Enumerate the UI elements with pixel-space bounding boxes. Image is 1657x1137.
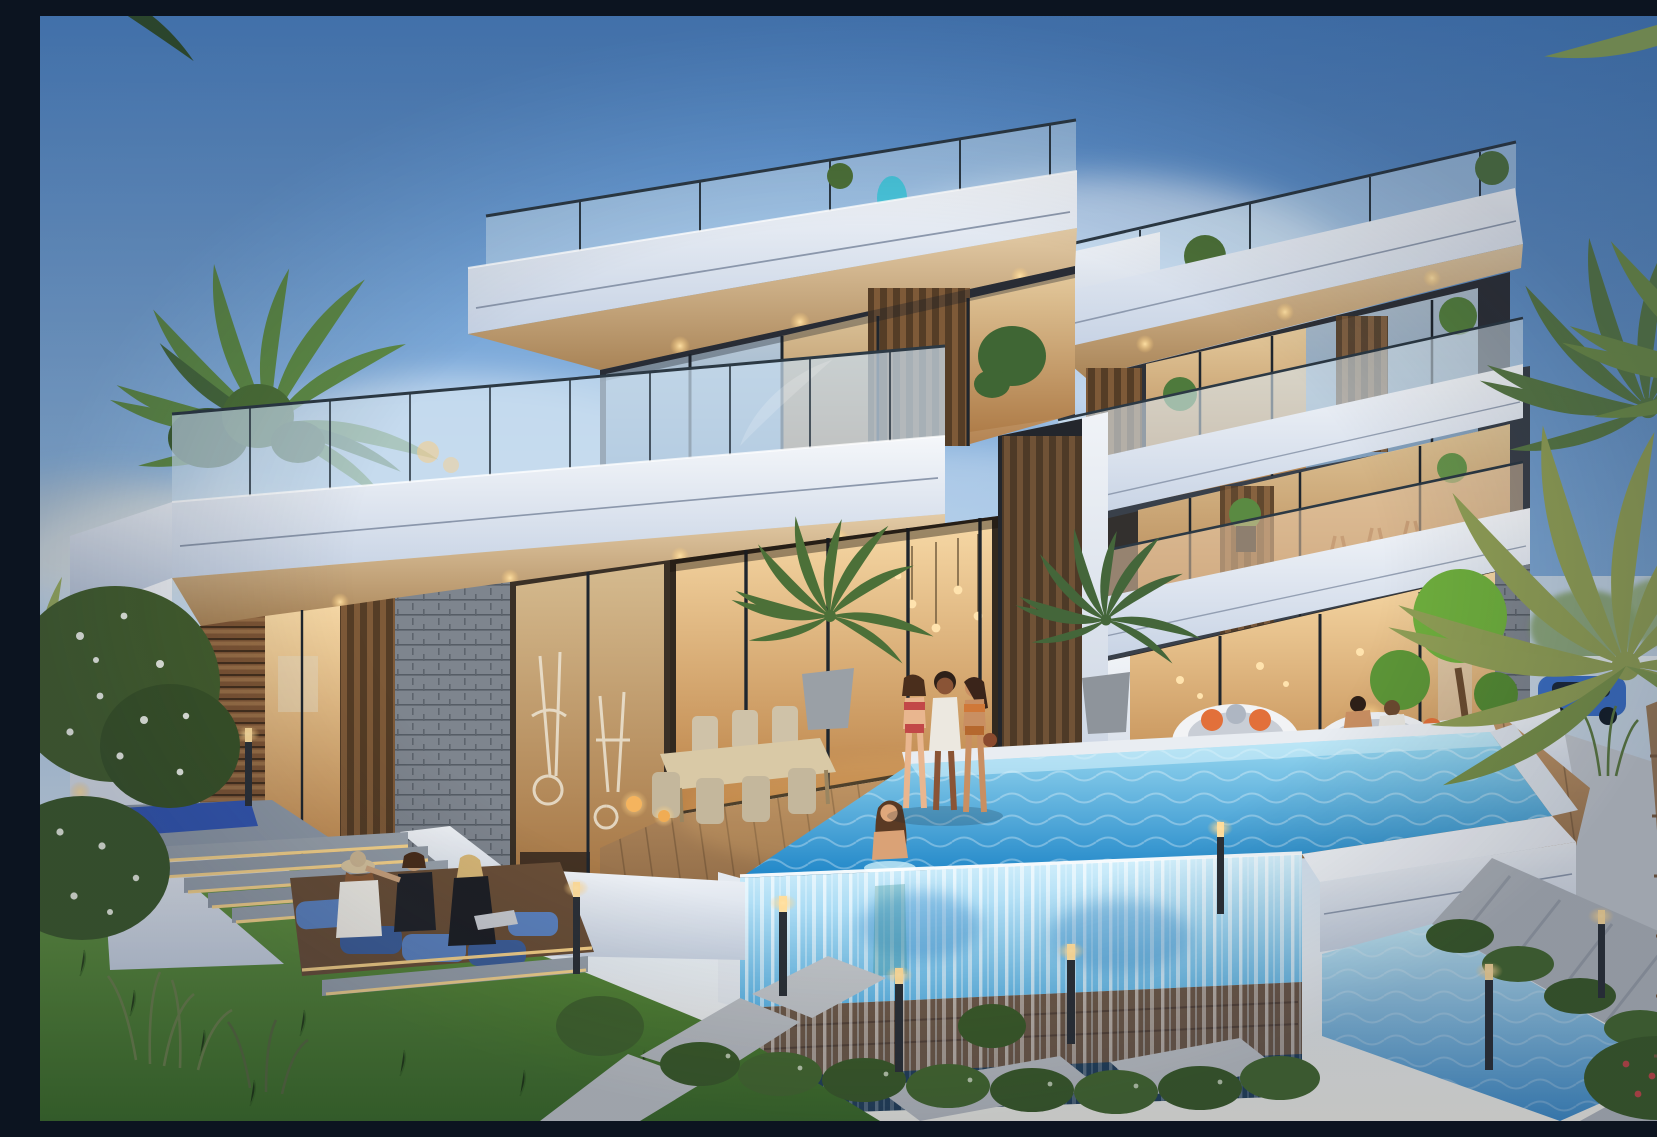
villa-rendering: Photorealistic dusk rendering of a two-v… bbox=[40, 16, 1657, 1121]
vignette bbox=[40, 16, 1657, 1121]
